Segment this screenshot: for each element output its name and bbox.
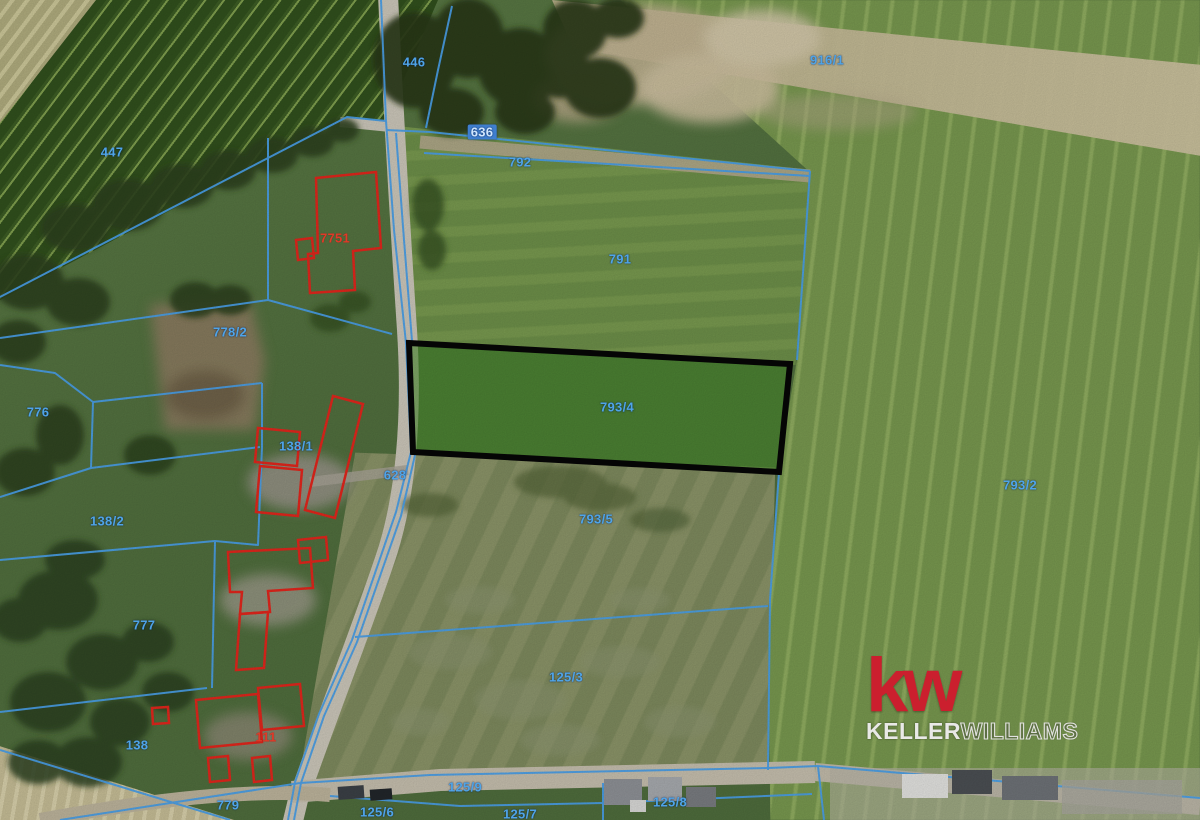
kw-logo-mark: kw (866, 648, 1076, 724)
keller-williams-logo: kw KELLERWILLIAMS (866, 648, 1076, 745)
wordmark-keller: KELLER (866, 718, 961, 744)
aerial-cadastral-map: 447446916/16367927917751778/2776138/1628… (0, 0, 1200, 820)
keller-williams-wordmark: KELLERWILLIAMS (866, 718, 1076, 745)
wordmark-williams: WILLIAMS (961, 718, 1079, 744)
